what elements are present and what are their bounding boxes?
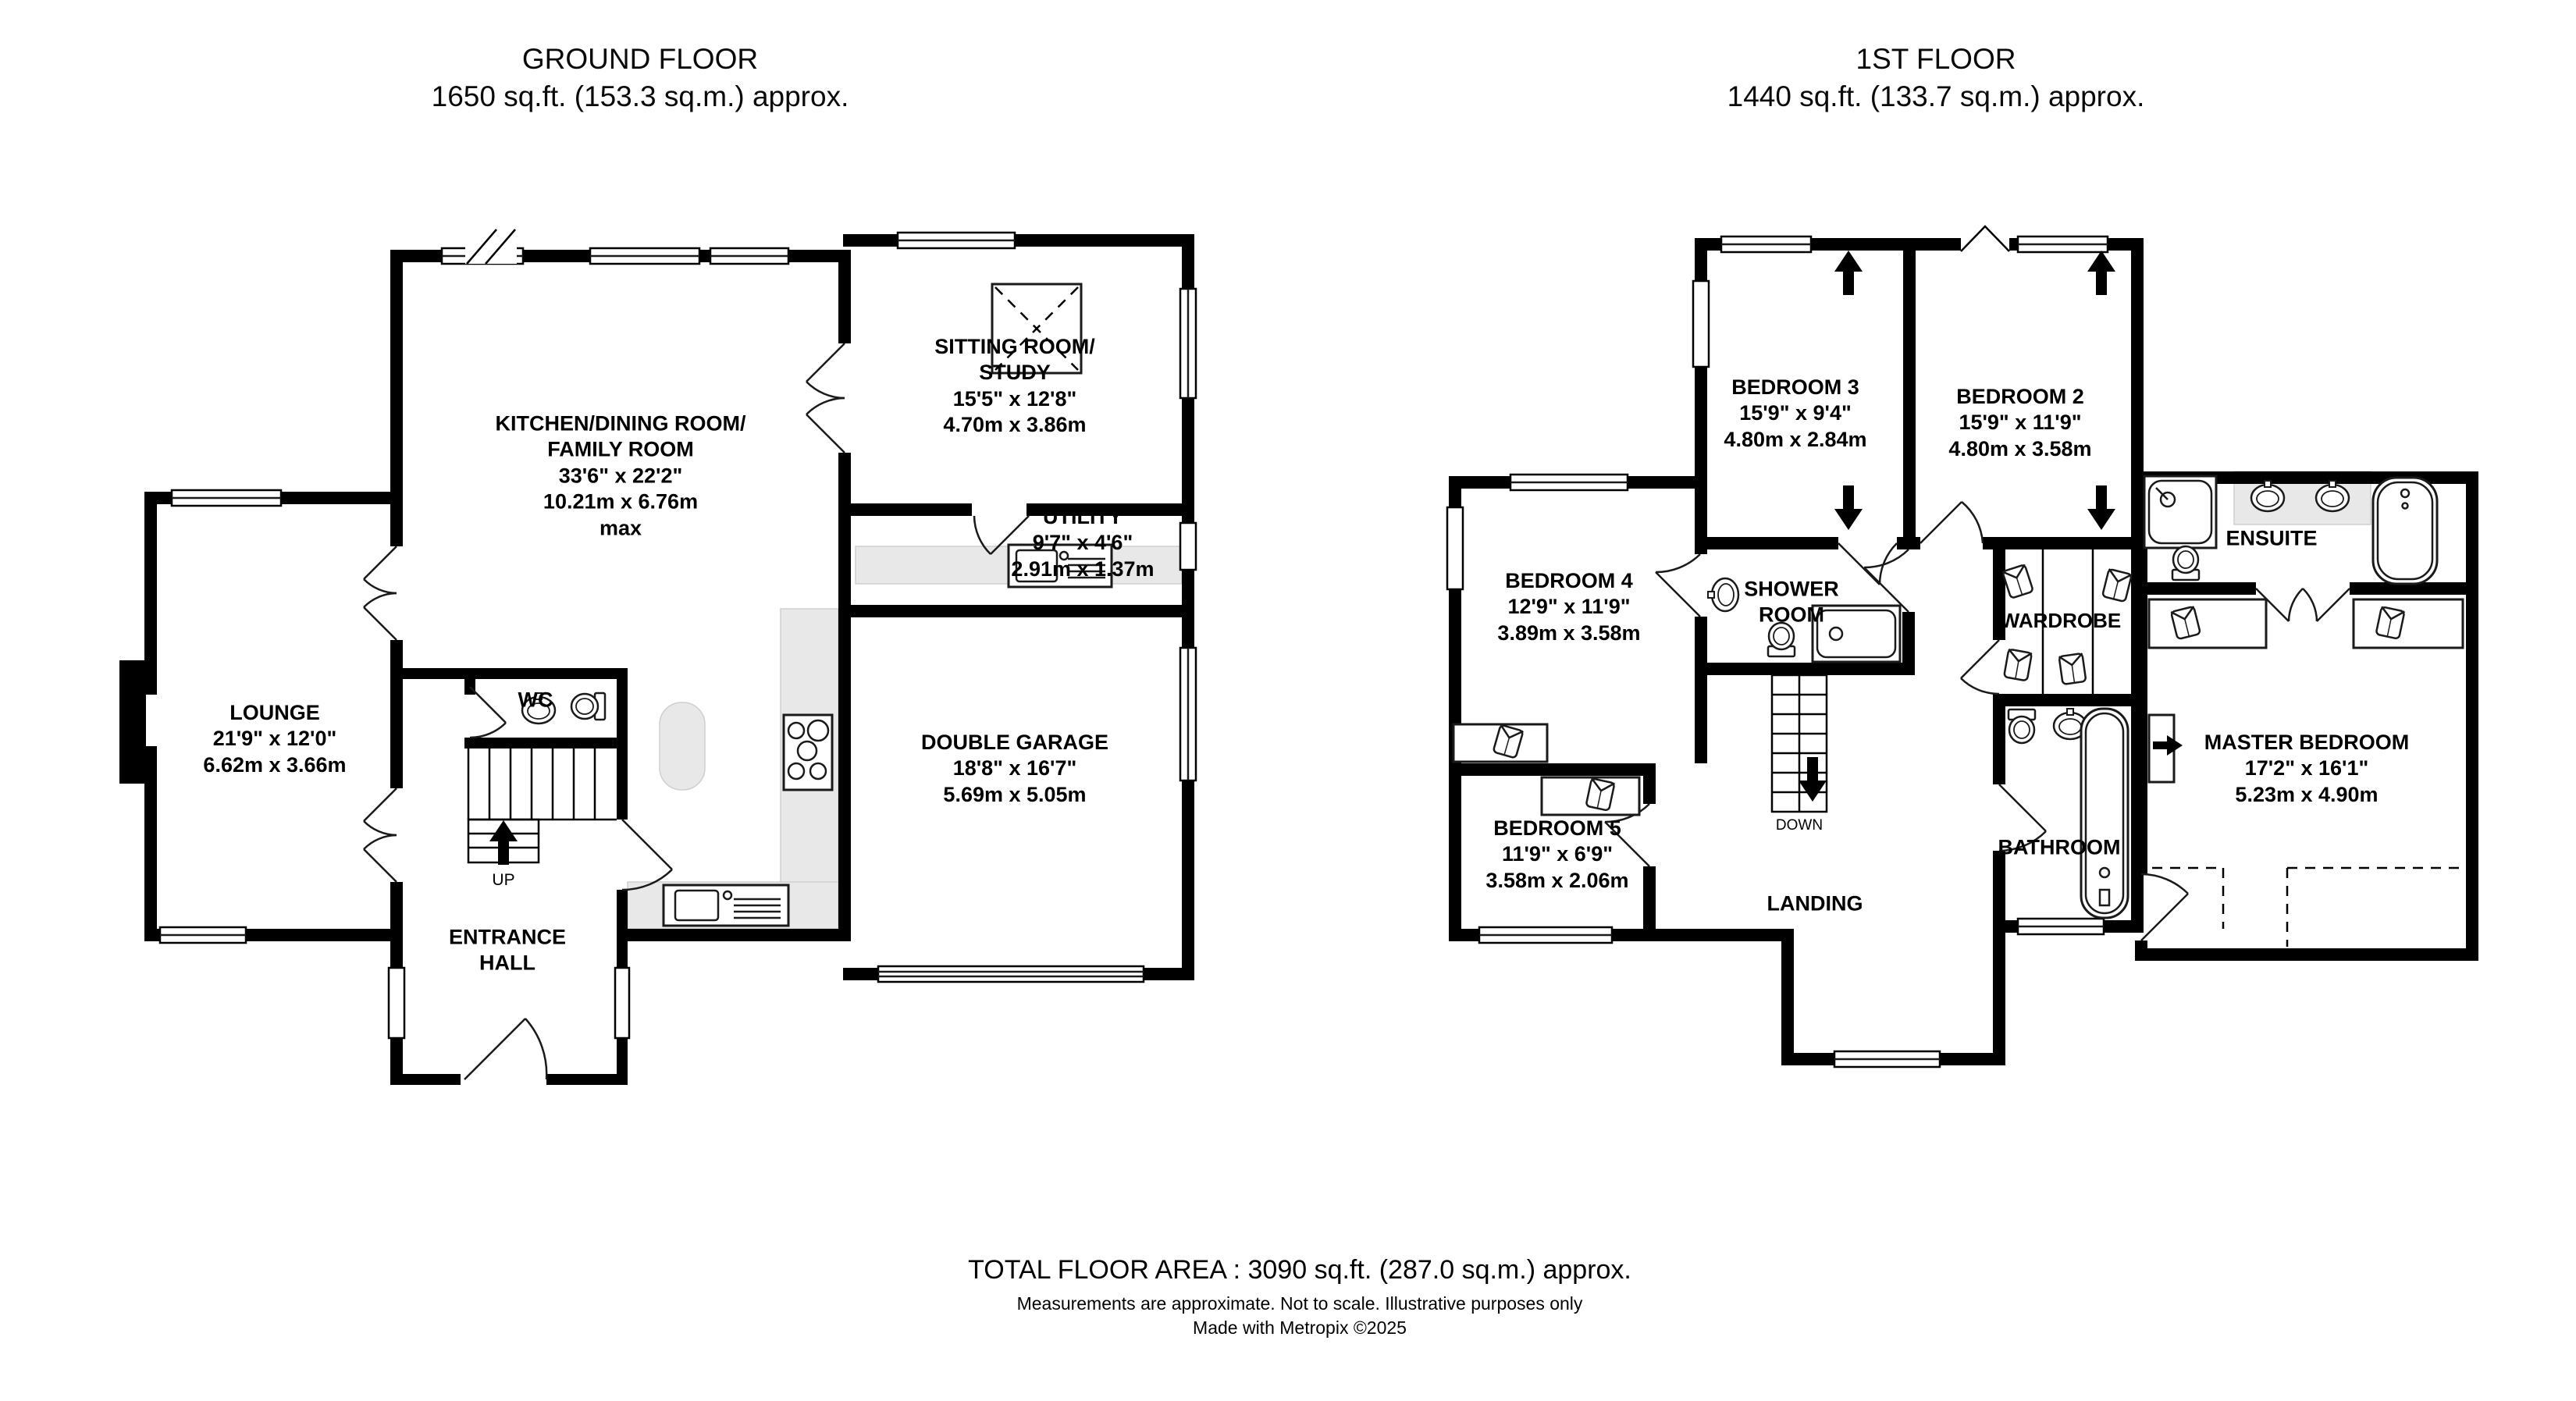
shirt-icon — [2059, 653, 2087, 684]
room-dims-imperial: 9'7" x 4'6" — [1011, 530, 1154, 556]
first-floor-title-line2: 1440 sq.ft. (133.7 sq.m.) approx. — [1727, 78, 2145, 116]
door-arc — [2141, 874, 2188, 941]
first-floor-title-line1: 1ST FLOOR — [1727, 41, 2145, 78]
ground-stairs — [468, 749, 617, 865]
room-name: BEDROOM 2 — [1948, 384, 2091, 410]
room-dims-metric: 2.91m x 1.37m — [1011, 556, 1154, 582]
door-arc — [1961, 640, 1999, 694]
fireplace-notch — [146, 695, 157, 746]
door-arc — [364, 593, 397, 640]
window — [1447, 507, 1463, 589]
door-arc — [806, 398, 845, 453]
label-shower-room: SHOWER ROOM — [1744, 577, 1839, 629]
room-name: LOUNGE — [203, 700, 346, 726]
front-door-arc — [464, 1019, 546, 1079]
window — [1693, 281, 1709, 367]
ground-floor-title-line1: GROUND FLOOR — [432, 41, 849, 78]
shower-icon — [2144, 476, 2216, 548]
window-break-chevron — [1961, 226, 2009, 252]
room-name: BEDROOM 5 — [1485, 816, 1628, 841]
first-doors — [1605, 502, 2350, 941]
room-note: max — [496, 515, 746, 541]
disclaimer: Measurements are approximate. Not to sca… — [968, 1292, 1631, 1316]
room-dims-imperial: 15'9" x 9'4" — [1724, 400, 1866, 426]
room-name: ROOM — [1744, 603, 1839, 628]
footer: TOTAL FLOOR AREA : 3090 sq.ft. (287.0 sq… — [968, 1255, 1631, 1340]
door-arc — [622, 820, 672, 890]
window-break-chevron — [465, 229, 517, 264]
floorplan-drawing — [0, 0, 2576, 1401]
room-dims-imperial: 17'2" x 16'1" — [2204, 756, 2410, 781]
shirt-icon — [2004, 649, 2032, 681]
label-wardrobe: WARDROBE — [2001, 608, 2122, 633]
room-dims-metric: 6.62m x 3.66m — [203, 752, 346, 778]
garage-door — [878, 966, 1144, 982]
credit: Made with Metropix ©2025 — [968, 1316, 1631, 1340]
ground-floor-title: GROUND FLOOR 1650 sq.ft. (153.3 sq.m.) a… — [432, 41, 849, 116]
shirt-icon — [1586, 778, 1615, 810]
room-dims-imperial: 12'9" x 11'9" — [1497, 594, 1640, 620]
door-arc — [364, 835, 397, 882]
porch-window — [615, 968, 629, 1038]
label-wc: WC — [518, 687, 553, 713]
room-dims-imperial: 33'6" x 22'2" — [496, 463, 746, 489]
room-name: LANDING — [1767, 891, 1863, 916]
room-name: STUDY — [934, 361, 1095, 386]
window — [1180, 523, 1196, 570]
room-dims-imperial: 11'9" x 6'9" — [1485, 841, 1628, 867]
first-floor-title: 1ST FLOOR 1440 sq.ft. (133.7 sq.m.) appr… — [1727, 41, 2145, 116]
cupboard-icon — [2149, 715, 2183, 782]
first-floor — [1447, 226, 2478, 1067]
room-name: BATHROOM — [1998, 834, 2121, 860]
door-arc — [806, 343, 845, 398]
label-master-bedroom: MASTER BEDROOM 17'2" x 16'1" 5.23m x 4.9… — [2204, 730, 2410, 808]
room-dims-metric: 5.23m x 4.90m — [2204, 782, 2410, 808]
door-arc — [364, 546, 397, 593]
floorplan-page: GROUND FLOOR 1650 sq.ft. (153.3 sq.m.) a… — [0, 0, 2576, 1401]
label-stairs-up: UP — [492, 871, 514, 890]
hob-icon — [784, 715, 832, 790]
label-garage: DOUBLE GARAGE 18'8" x 16'7" 5.69m x 5.05… — [921, 730, 1108, 808]
bath-icon — [2081, 709, 2128, 918]
label-bathroom: BATHROOM — [1998, 834, 2121, 860]
label-bedroom3: BEDROOM 3 15'9" x 9'4" 4.80m x 2.84m — [1724, 375, 1866, 453]
first-stairs — [1772, 675, 1827, 812]
ground-floor-title-line2: 1650 sq.ft. (153.3 sq.m.) approx. — [432, 78, 849, 116]
label-lounge: LOUNGE 21'9" x 12'0" 6.62m x 3.66m — [203, 700, 346, 778]
room-dims-metric: 10.21m x 6.76m — [496, 489, 746, 515]
room-dims-metric: 4.70m x 3.86m — [934, 412, 1095, 438]
stairs-down-arrow — [1799, 757, 1827, 802]
room-dims-metric: 3.58m x 2.06m — [1485, 868, 1628, 894]
label-bedroom5: BEDROOM 5 11'9" x 6'9" 3.58m x 2.06m — [1485, 816, 1628, 894]
bathroom-fixtures — [2008, 709, 2128, 918]
room-name: SITTING ROOM/ — [934, 334, 1095, 360]
room-name: ENTRANCE — [449, 925, 566, 951]
room-dims-imperial: 18'8" x 16'7" — [921, 756, 1108, 781]
basin-icon — [1708, 578, 1738, 611]
door-arc — [364, 788, 397, 835]
room-name: BEDROOM 3 — [1724, 375, 1866, 400]
room-name: ENSUITE — [2226, 525, 2317, 551]
room-dims-imperial: 15'5" x 12'8" — [934, 386, 1095, 412]
room-name: WC — [518, 687, 553, 713]
room-dims-metric: 5.69m x 5.05m — [921, 782, 1108, 808]
label-bedroom2: BEDROOM 2 15'9" x 11'9" 4.80m x 3.58m — [1948, 384, 2091, 462]
room-name: UTILITY — [1011, 504, 1154, 530]
label-stairs-down: DOWN — [1776, 817, 1823, 834]
wc-toilet-icon — [571, 693, 605, 720]
label-sitting-room: SITTING ROOM/ STUDY 15'5" x 12'8" 4.70m … — [934, 334, 1095, 439]
room-dims-imperial: 21'9" x 12'0" — [203, 726, 346, 752]
room-dims-imperial: 15'9" x 11'9" — [1948, 410, 2091, 436]
shirt-icon — [2102, 569, 2132, 602]
room-name: DOUBLE GARAGE — [921, 730, 1108, 756]
label-bedroom4: BEDROOM 4 12'9" x 11'9" 3.89m x 3.58m — [1497, 568, 1640, 646]
stairs-up-arrow — [489, 820, 518, 865]
porch-window — [389, 968, 404, 1038]
room-name: FAMILY ROOM — [496, 437, 746, 463]
bath-icon — [2373, 478, 2437, 584]
total-floor-area: TOTAL FLOOR AREA : 3090 sq.ft. (287.0 sq… — [968, 1255, 1631, 1285]
shirt-icon — [2002, 564, 2033, 599]
chimney-breast — [119, 660, 146, 784]
room-dims-metric: 3.89m x 3.58m — [1497, 620, 1640, 646]
shirt-icon — [2376, 606, 2405, 638]
toilet-icon — [2008, 709, 2035, 743]
room-name: KITCHEN/DINING ROOM/ — [496, 411, 746, 436]
room-dims-metric: 4.80m x 3.58m — [1948, 436, 2091, 462]
label-ensuite: ENSUITE — [2226, 525, 2317, 551]
door-arc — [1656, 554, 1700, 617]
room-name: HALL — [449, 951, 566, 976]
room-name: BEDROOM 4 — [1497, 568, 1640, 594]
door-arc — [1920, 502, 1983, 543]
label-utility: UTILITY 9'7" x 4'6" 2.91m x 1.37m — [1011, 504, 1154, 582]
label-entrance-hall: ENTRANCE HALL — [449, 925, 566, 977]
label-landing: LANDING — [1767, 891, 1863, 916]
kitchen-sink-icon — [664, 885, 788, 926]
room-name: WARDROBE — [2001, 608, 2122, 633]
room-name: MASTER BEDROOM — [2204, 730, 2410, 756]
double-door-arc — [2303, 588, 2350, 621]
room-name: SHOWER — [1744, 577, 1839, 603]
label-kitchen: KITCHEN/DINING ROOM/ FAMILY ROOM 33'6" x… — [496, 411, 746, 541]
toilet-icon — [2172, 546, 2199, 580]
room-dims-metric: 4.80m x 2.84m — [1724, 427, 1866, 453]
